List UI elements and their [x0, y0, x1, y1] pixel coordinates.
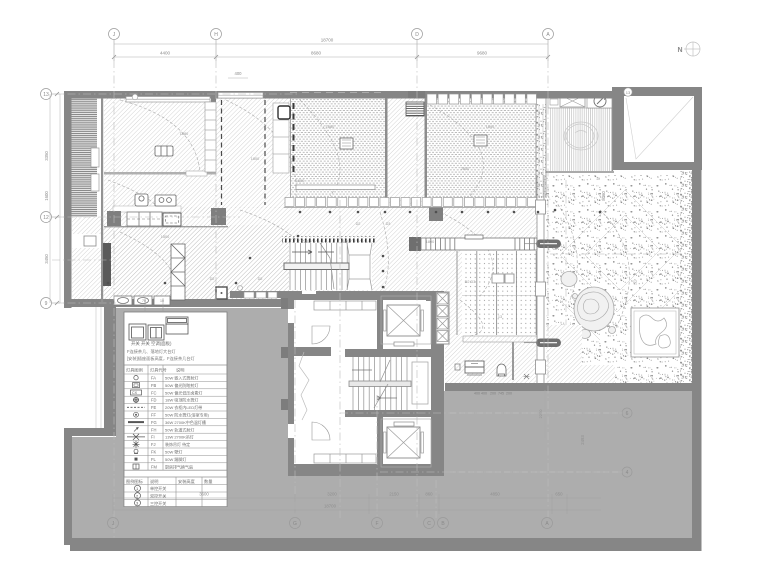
svg-text:FH: FH: [151, 427, 157, 432]
svg-text:FM: FM: [151, 464, 158, 469]
svg-text:12: 12: [43, 215, 49, 221]
svg-text:FG: FG: [151, 420, 157, 425]
svg-text:D3: D3: [386, 222, 391, 226]
svg-text:D2: D2: [210, 277, 215, 281]
svg-text:安装高度: 安装高度: [178, 478, 196, 485]
svg-text:6: 6: [626, 411, 629, 417]
svg-text:13W 2700K吊灯: 13W 2700K吊灯: [165, 434, 194, 440]
svg-text:400: 400: [235, 71, 243, 76]
svg-text:13: 13: [626, 90, 631, 95]
svg-text:860: 860: [425, 492, 433, 497]
svg-text:12: 12: [633, 280, 637, 284]
svg-text:3350: 3350: [44, 151, 49, 161]
svg-text:数量: 数量: [204, 478, 212, 485]
svg-text:3450: 3450: [44, 254, 49, 264]
svg-text:50W 踢脚灯: 50W 踢脚灯: [165, 456, 186, 462]
svg-text:1890: 1890: [486, 125, 494, 129]
svg-text:70: 70: [142, 299, 146, 303]
svg-text:18W 吸顶防水筒灯: 18W 吸顶防水筒灯: [165, 397, 198, 403]
svg-text:9: 9: [45, 301, 48, 307]
svg-text:10: 10: [160, 299, 164, 303]
svg-text:FE: FE: [151, 405, 157, 410]
svg-text:1600: 1600: [44, 191, 49, 201]
svg-text:A: A: [546, 32, 550, 38]
svg-text:[安装]插座面板高度，F连接茶几台灯: [安装]插座面板高度，F连接茶几台灯: [127, 355, 196, 362]
svg-text:400 400 200 745 200: 400 400 200 745 200: [474, 392, 512, 396]
svg-text:厨房排气换气扇: 厨房排气换气扇: [165, 463, 193, 469]
svg-text:H: H: [214, 32, 218, 38]
svg-text:13: 13: [498, 315, 502, 319]
svg-text:1800: 1800: [251, 157, 259, 161]
svg-text:13: 13: [43, 92, 49, 98]
svg-text:FA: FA: [151, 376, 156, 381]
svg-text:单控开关: 单控开关: [150, 485, 166, 491]
svg-text:N: N: [677, 47, 682, 54]
svg-text:4: 4: [626, 470, 629, 476]
svg-text:18700: 18700: [321, 38, 334, 43]
svg-text:FL: FL: [151, 457, 157, 462]
svg-text:50W 嵌入式筒射灯: 50W 嵌入式筒射灯: [165, 375, 198, 381]
svg-text:1880: 1880: [326, 125, 334, 129]
svg-text:36W 2700K中色温灯槽: 36W 2700K中色温灯槽: [165, 419, 206, 425]
svg-text:双控开关: 双控开关: [150, 493, 166, 499]
svg-text:开关 开关 空调(面板): 开关 开关 空调(面板): [131, 340, 172, 347]
svg-text:FK: FK: [151, 450, 157, 455]
svg-text:说明: 说明: [176, 367, 184, 374]
svg-text:18700: 18700: [324, 504, 337, 509]
svg-text:2850: 2850: [461, 167, 469, 171]
svg-text:F连接茶几、落地灯大台灯: F连接茶几、落地灯大台灯: [127, 348, 176, 355]
svg-text:D2: D2: [258, 277, 263, 281]
svg-text:8680: 8680: [311, 51, 322, 56]
svg-text:图例图标: 图例图标: [126, 478, 143, 485]
svg-text:D2: D2: [553, 247, 558, 251]
svg-text:D2: D2: [356, 222, 361, 226]
svg-text:20W 衣柜内LED灯带: 20W 衣柜内LED灯带: [165, 404, 202, 410]
svg-text:FC: FC: [151, 390, 157, 395]
svg-text:J: J: [113, 32, 116, 38]
svg-text:FI: FI: [151, 435, 155, 440]
svg-text:650: 650: [555, 492, 563, 497]
svg-text:2493: 2493: [580, 435, 585, 445]
svg-text:F: F: [375, 521, 378, 527]
svg-text:1800: 1800: [341, 240, 349, 244]
svg-text:G: G: [293, 521, 297, 527]
svg-text:4400: 4400: [160, 51, 171, 56]
svg-text:4850: 4850: [490, 492, 500, 497]
svg-text:50W 偏光低压卤素灯: 50W 偏光低压卤素灯: [165, 389, 202, 395]
svg-text:1880: 1880: [180, 132, 188, 136]
svg-text:50W 防水筒灯(浴室专用): 50W 防水筒灯(浴室专用): [165, 412, 210, 418]
svg-text:50W 壁灯: 50W 壁灯: [165, 449, 182, 455]
svg-text:1800: 1800: [296, 179, 304, 183]
svg-text:FF: FF: [151, 413, 157, 418]
svg-text:灯具图例: 灯具图例: [126, 367, 143, 374]
svg-text:1500: 1500: [161, 235, 169, 239]
svg-text:3110: 3110: [301, 240, 309, 244]
svg-text:D2 D3: D2 D3: [465, 280, 476, 284]
svg-text:3600: 3600: [199, 492, 209, 497]
svg-text:11: 11: [596, 177, 600, 181]
svg-text:FD: FD: [151, 398, 157, 403]
svg-text:说明: 说明: [150, 478, 158, 485]
svg-text:9680: 9680: [477, 51, 488, 56]
svg-text:2150: 2150: [389, 492, 399, 497]
svg-text:FJ: FJ: [151, 442, 156, 447]
svg-text:3200: 3200: [327, 492, 337, 497]
svg-text:D: D: [415, 32, 419, 38]
svg-text:50W 轨道式射灯: 50W 轨道式射灯: [165, 426, 194, 432]
svg-text:1800: 1800: [426, 240, 434, 244]
svg-text:CX: CX: [132, 391, 138, 395]
svg-text:C: C: [427, 521, 431, 527]
svg-text:FB: FB: [151, 383, 157, 388]
svg-text:灯具代号: 灯具代号: [150, 367, 167, 374]
svg-text:三控开关: 三控开关: [150, 500, 166, 506]
svg-text:8060: 8060: [601, 191, 606, 201]
svg-text:2200: 2200: [538, 409, 543, 419]
svg-text:50W 偏光防眩射灯: 50W 偏光防眩射灯: [165, 382, 198, 388]
svg-text:装饰吊灯 待定: 装饰吊灯 待定: [165, 441, 190, 447]
